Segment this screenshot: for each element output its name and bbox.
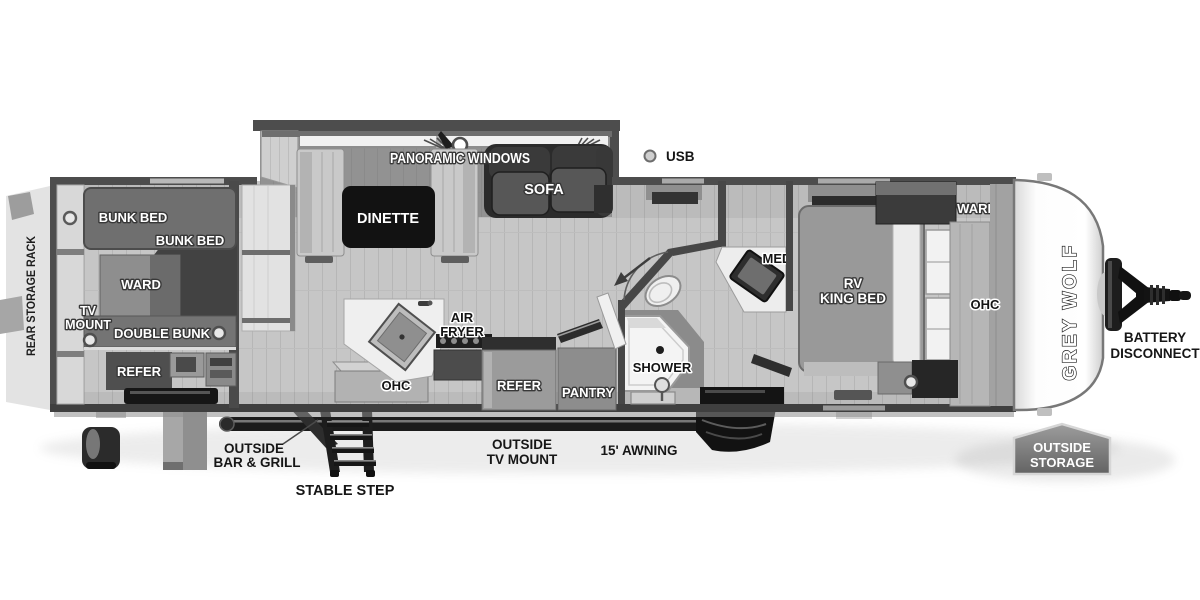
svg-text:TV MOUNT: TV MOUNT	[487, 452, 558, 467]
svg-text:WARD: WARD	[121, 277, 161, 292]
svg-text:STABLE STEP: STABLE STEP	[296, 483, 395, 499]
svg-text:BAR & GRILL: BAR & GRILL	[214, 455, 301, 470]
svg-text:USB: USB	[666, 149, 695, 164]
svg-text:GREY WOLF: GREY WOLF	[1060, 243, 1081, 380]
svg-text:STORAGE: STORAGE	[1030, 455, 1094, 470]
svg-text:BUNK BED: BUNK BED	[156, 233, 225, 248]
svg-text:OHC: OHC	[971, 297, 1001, 312]
svg-text:PANTRY: PANTRY	[562, 385, 614, 400]
svg-text:SOFA: SOFA	[524, 182, 564, 198]
svg-text:DISCONNECT: DISCONNECT	[1110, 346, 1200, 361]
svg-text:TV: TV	[80, 304, 97, 318]
svg-text:REFER: REFER	[497, 378, 542, 393]
svg-text:RV: RV	[844, 276, 863, 291]
svg-text:DOUBLE BUNK: DOUBLE BUNK	[114, 326, 211, 341]
svg-text:OUTSIDE: OUTSIDE	[224, 441, 284, 456]
svg-text:BATTERY: BATTERY	[1124, 330, 1186, 345]
svg-text:OUTSIDE: OUTSIDE	[1033, 440, 1091, 455]
svg-text:MOUNT: MOUNT	[65, 318, 111, 332]
svg-text:BUNK BED: BUNK BED	[99, 210, 168, 225]
svg-text:REFER: REFER	[117, 364, 162, 379]
svg-text:OUTSIDE: OUTSIDE	[492, 437, 552, 452]
svg-text:REAR STORAGE RACK: REAR STORAGE RACK	[24, 236, 38, 356]
svg-text:PANORAMIC WINDOWS: PANORAMIC WINDOWS	[390, 151, 530, 167]
svg-text:15' AWNING: 15' AWNING	[601, 443, 678, 458]
svg-text:SHOWER: SHOWER	[633, 360, 692, 375]
svg-text:AIR: AIR	[451, 310, 474, 325]
svg-text:FRYER: FRYER	[440, 324, 484, 339]
svg-text:KING BED: KING BED	[820, 291, 886, 306]
svg-text:DINETTE: DINETTE	[357, 211, 419, 227]
